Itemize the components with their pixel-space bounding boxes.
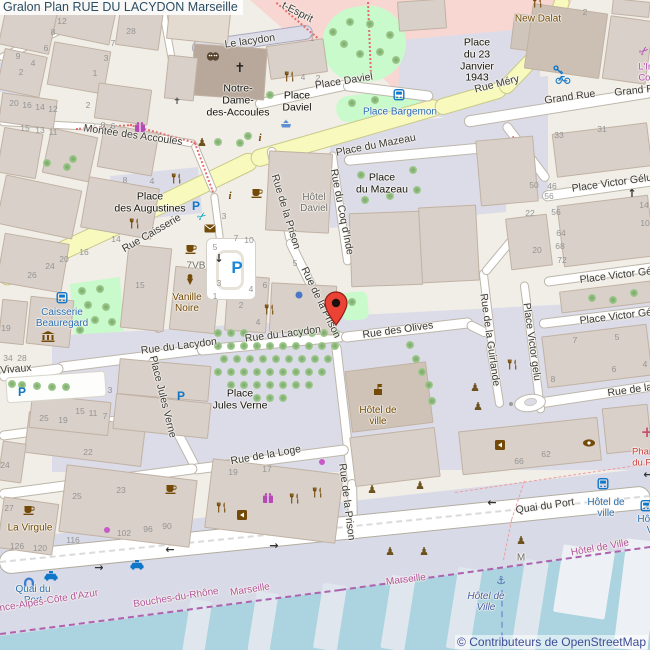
house-number: 3 (108, 386, 113, 396)
house-number: 120 (33, 544, 47, 554)
house-number: 126 (10, 542, 24, 552)
pharmacy-label: Phar du P (632, 447, 650, 468)
house-number: 23 (116, 486, 125, 496)
place-label: Place Jules Verne (213, 388, 268, 412)
house-number: 4 (249, 285, 254, 295)
house-number: 15 (20, 124, 29, 134)
street-label: Quai du Port (515, 497, 575, 517)
house-number: 6 (44, 44, 49, 54)
place-label: Place du 23 Janvier 1943 (460, 38, 494, 85)
transit-label: Hôtel de Ville (637, 514, 650, 536)
house-number: 96 (143, 525, 152, 535)
house-number: 4 (643, 360, 648, 370)
house-number: 7 (103, 412, 108, 422)
house-number: 14 (35, 103, 44, 113)
house-number: 6 (111, 122, 116, 132)
house-number: 19 (58, 416, 67, 426)
street-label: Place Victor Gélu (579, 265, 650, 287)
house-number: 14 (111, 235, 120, 245)
house-number: 22 (83, 448, 92, 458)
house-number: 16 (79, 248, 88, 258)
misc-label: 7VB (187, 260, 206, 271)
map-canvas[interactable]: ✝✝ii♟♟♟♟♟♟♟♟PPPP✂✂⚓+↓→←→←←↑ Le lacydonMo… (0, 0, 650, 650)
house-number: 1 (310, 34, 315, 44)
house-number: 25 (39, 414, 48, 424)
house-number: 5 (293, 259, 298, 269)
street-label: t-Esprit (280, 0, 315, 26)
house-number: 1 (213, 292, 218, 302)
house-number: 24 (45, 262, 54, 272)
admin-boundary-label: Marseille (385, 572, 426, 588)
house-number: 16 (22, 101, 31, 111)
transit-label: Place Bargemon (363, 106, 437, 117)
house-number: 26 (27, 271, 36, 281)
house-number: 50 (529, 181, 538, 191)
house-number: 1 (93, 69, 98, 79)
house-number: 19 (228, 468, 237, 478)
house-number: 2 (19, 68, 24, 78)
house-number: 4 (31, 59, 36, 69)
house-number: 68 (555, 242, 564, 252)
street-label: Rue du Coq d'Inde (327, 168, 355, 256)
house-number: 3 (104, 54, 109, 64)
house-number: 56 (551, 208, 560, 218)
house-number: 19 (1, 324, 10, 334)
street-label: Rue de la Prison (268, 173, 302, 251)
house-number: 11 (49, 128, 58, 138)
street-label: Rue du Lacydon (140, 337, 217, 358)
house-number: 56 (544, 192, 553, 202)
house-number: 14 (639, 201, 648, 211)
street-label: Place Jules Verne (146, 355, 178, 439)
house-number: 34 (3, 354, 12, 364)
page-title: Gralon Plan RUE DU LACYDON Marseille (0, 0, 243, 15)
house-number: 20 (532, 246, 541, 256)
house-number: 8 (51, 28, 56, 38)
house-number: 2 (239, 301, 244, 311)
house-number: 7 (234, 234, 239, 244)
house-number: 28 (126, 27, 135, 37)
street-label: Grand Rue (614, 82, 650, 99)
street-label: Montée des Accoules (83, 123, 183, 149)
poi-label: Vanille Noire (172, 292, 201, 314)
house-number: 102 (117, 529, 131, 539)
street-label: Vivaux (0, 363, 32, 377)
house-number: 12 (48, 105, 57, 115)
house-number: 20 (59, 255, 68, 265)
misc-label: M (517, 552, 525, 563)
house-number: 10 (640, 219, 649, 229)
house-number: 2 (86, 101, 91, 111)
house-number: 6 (263, 281, 268, 291)
house-number: 7 (573, 336, 578, 346)
house-number: 3 (222, 212, 227, 222)
house-number: 2 (316, 74, 321, 84)
admin-boundary-label: Marseille (229, 581, 270, 598)
street-label: Rue des Olives (362, 320, 434, 342)
place-label: Place Daviel (282, 90, 311, 114)
street-label: Grand Rue (544, 89, 597, 108)
house-number: 5 (213, 243, 218, 253)
house-number: 31 (597, 125, 606, 135)
house-number: 64 (556, 229, 565, 239)
house-number: 4 (256, 318, 261, 328)
house-number: 2 (583, 8, 588, 18)
water-label: Hôtel de Ville (467, 591, 504, 613)
house-number: 11 (89, 409, 98, 419)
admin-boundary-label: Hôtel de Ville (570, 537, 630, 558)
house-number: 4 (150, 177, 155, 187)
house-number: 22 (525, 209, 534, 219)
street-label: Rue de la (607, 382, 650, 400)
house-number: 4 (301, 73, 306, 83)
house-number: 28 (17, 354, 26, 364)
house-number: 15 (135, 281, 144, 291)
house-number: 5 (615, 333, 620, 343)
house-number: 7 (111, 39, 116, 49)
poi-label: La Virgule (8, 522, 53, 533)
admin-boundary-label: Bouches-du-Rhône (133, 586, 220, 611)
house-number: 6 (612, 365, 617, 375)
house-number: 13 (35, 126, 44, 136)
house-number: 72 (557, 256, 566, 266)
place-label: Place des Augustines (114, 191, 185, 215)
house-number: 8 (551, 375, 556, 385)
house-number: 20 (9, 99, 18, 109)
house-number: 33 (554, 131, 563, 141)
poi-label: New Dalat (515, 13, 561, 24)
shop-label: L'Ins Coiff (638, 62, 650, 83)
house-number: 10 (244, 236, 253, 246)
street-label: Place du Mazeau (335, 132, 417, 159)
house-number: 8 (101, 121, 106, 131)
map-pin-icon (323, 291, 349, 327)
misc-label: Hôtel Daviel (300, 192, 328, 214)
street-label: Le lacydon (224, 33, 276, 52)
poi-label: Hôtel de ville (359, 405, 396, 427)
house-number: 12 (57, 17, 66, 27)
place-label: Notre- Dame- des-Accoules (206, 83, 269, 118)
house-number: 62 (541, 450, 550, 460)
street-label: Rue de la Prison (335, 463, 356, 541)
house-number: 90 (162, 522, 171, 532)
attribution[interactable]: © Contributeurs de OpenStreetMap (455, 635, 648, 649)
house-number: 25 (72, 492, 81, 502)
street-label: Rue Caisserie (121, 212, 184, 255)
house-number: 3 (217, 279, 222, 289)
street-label: Place Victor Gélu (571, 173, 650, 196)
house-number: 9 (16, 52, 21, 62)
street-label: Place Victor gelu (520, 302, 543, 381)
street-label: Place Daviel (314, 72, 373, 93)
house-number: 8 (123, 176, 128, 186)
street-label: Rue de la Guirlande (477, 293, 502, 387)
house-number: 24 (0, 461, 9, 471)
house-number: 17 (262, 465, 271, 475)
house-number: 116 (66, 536, 80, 546)
street-label: Place Victor Gélu (579, 306, 650, 328)
house-number: 66 (514, 457, 523, 467)
place-label: Place du Mazeau (356, 172, 408, 196)
transit-label: Caisserie Beauregard (36, 307, 88, 329)
location-marker (323, 291, 349, 332)
house-number: 15 (75, 407, 84, 417)
transit-label: Hôtel de ville (587, 497, 624, 519)
house-number: 27 (4, 504, 13, 514)
